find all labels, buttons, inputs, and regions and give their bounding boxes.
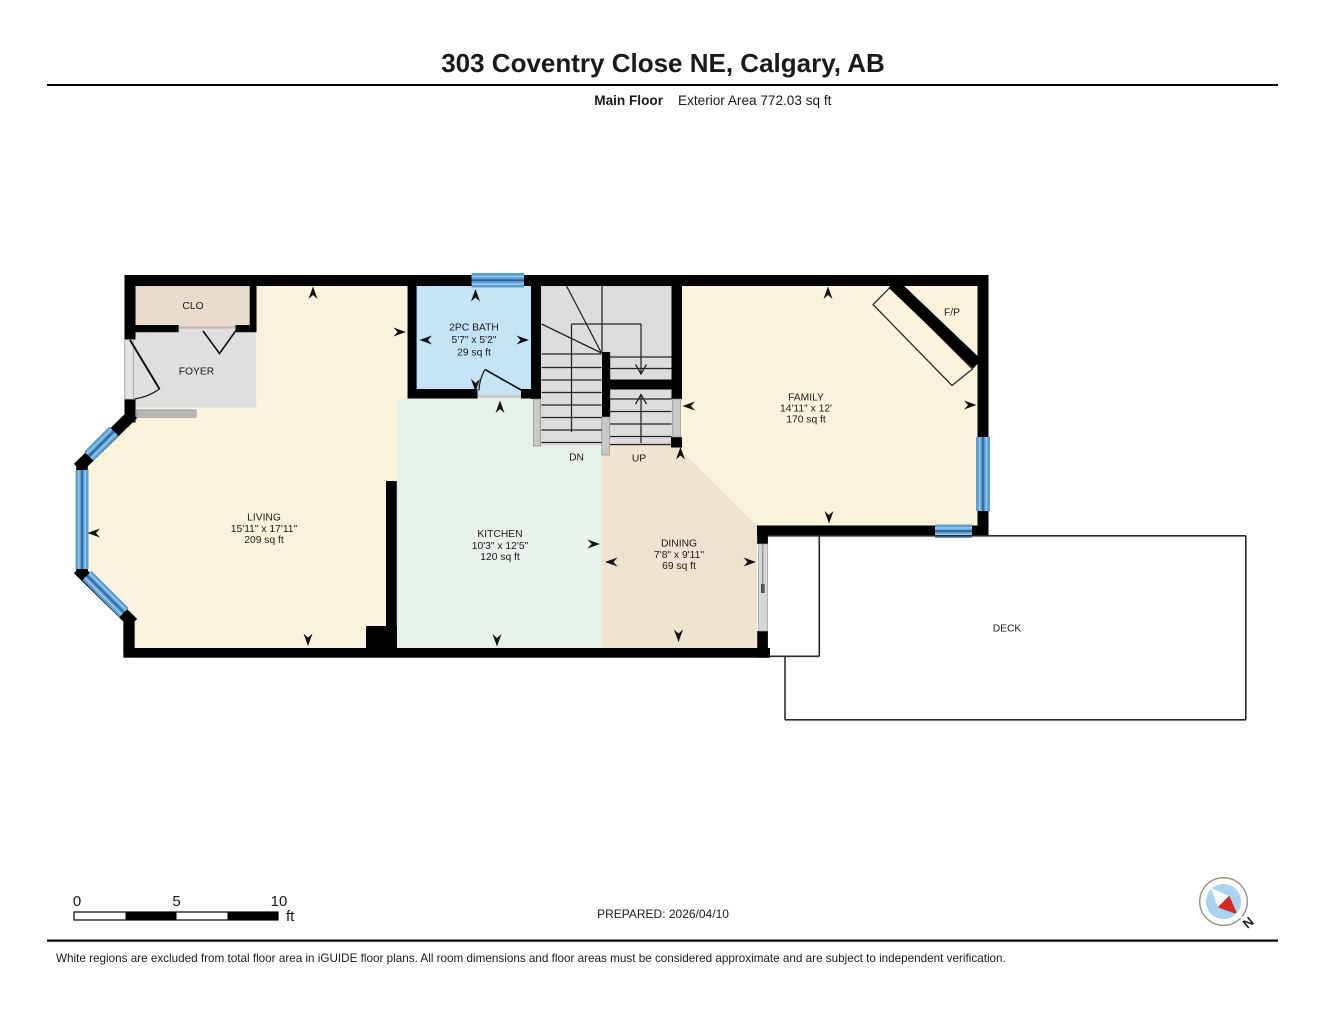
svg-text:PREPARED: 2026/04/10: PREPARED: 2026/04/10 <box>597 907 729 921</box>
svg-text:White regions are excluded fro: White regions are excluded from total fl… <box>56 952 1006 965</box>
svg-text:UP: UP <box>632 454 646 465</box>
svg-text:303 Coventry Close NE, Calgary: 303 Coventry Close NE, Calgary, AB <box>441 48 885 78</box>
svg-text:0: 0 <box>73 893 81 910</box>
svg-text:209 sq ft: 209 sq ft <box>244 535 284 546</box>
svg-text:69 sq ft: 69 sq ft <box>662 561 696 572</box>
svg-text:KITCHEN: KITCHEN <box>477 529 522 540</box>
svg-text:F/P: F/P <box>944 308 960 319</box>
svg-text:CLO: CLO <box>182 301 203 312</box>
svg-text:10: 10 <box>271 893 288 910</box>
svg-text:LIVING: LIVING <box>247 513 281 524</box>
svg-text:2PC BATH: 2PC BATH <box>449 323 499 334</box>
svg-text:14'11" x 12': 14'11" x 12' <box>780 404 832 415</box>
svg-text:15'11" x 17'11": 15'11" x 17'11" <box>231 524 298 535</box>
svg-text:5'7" x 5'2": 5'7" x 5'2" <box>451 335 496 346</box>
svg-text:29 sq ft: 29 sq ft <box>457 347 491 358</box>
svg-text:7'8" x 9'11": 7'8" x 9'11" <box>654 550 704 561</box>
svg-text:Exterior Area 772.03 sq ft: Exterior Area 772.03 sq ft <box>678 93 832 108</box>
svg-text:DINING: DINING <box>661 539 697 550</box>
svg-text:10'3" x 12'5": 10'3" x 12'5" <box>472 541 529 552</box>
svg-text:Main Floor: Main Floor <box>594 93 663 108</box>
svg-text:DECK: DECK <box>993 624 1022 635</box>
svg-text:FAMILY: FAMILY <box>788 393 824 404</box>
svg-text:DN: DN <box>569 453 584 464</box>
svg-text:170 sq ft: 170 sq ft <box>786 415 826 426</box>
svg-text:5: 5 <box>172 893 180 910</box>
svg-text:FOYER: FOYER <box>179 367 214 378</box>
svg-text:120 sq ft: 120 sq ft <box>480 552 520 563</box>
svg-text:ft: ft <box>286 908 295 925</box>
